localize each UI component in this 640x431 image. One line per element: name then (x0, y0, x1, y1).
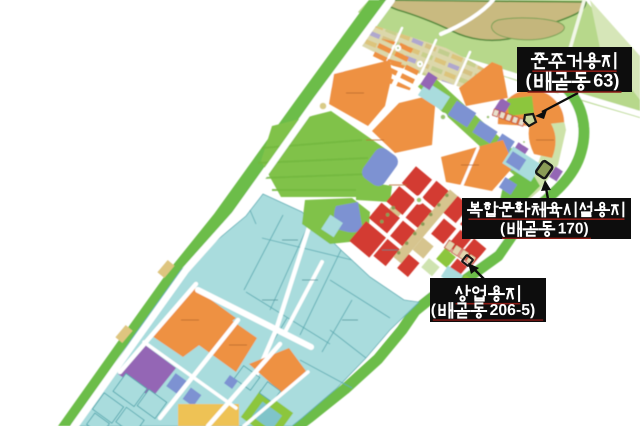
svg-text:(: ( (431, 302, 437, 319)
svg-text:206-5): 206-5) (490, 302, 536, 319)
svg-text:63): 63) (593, 71, 619, 91)
svg-text:(: ( (526, 71, 533, 91)
svg-text:(: ( (500, 220, 506, 237)
svg-text:170): 170) (558, 220, 589, 237)
